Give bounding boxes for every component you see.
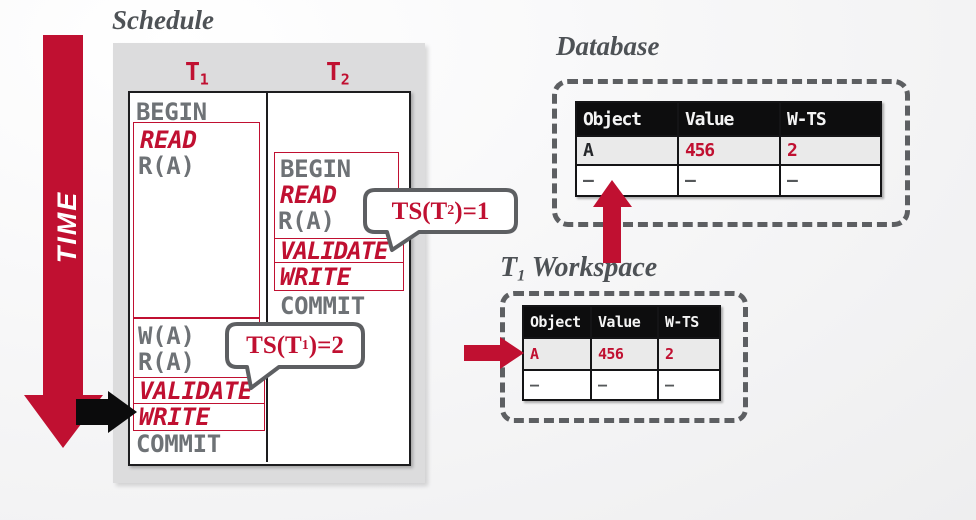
t2-begin: BEGIN (280, 157, 351, 181)
t1-write-a: W(A) (138, 324, 195, 348)
workspace-header-value: Value (590, 307, 657, 337)
ts-t1-callout-text: TS(T1)=2 (227, 324, 363, 367)
t2-column-header: T2 (326, 59, 350, 88)
current-step-arrow-shape (76, 391, 137, 433)
workspace-row-empty: – – – (524, 369, 719, 399)
workspace-title-suffix: Workspace (525, 252, 657, 283)
ts-t1-prefix: TS(T (246, 333, 302, 358)
ts-t1-suffix: )=2 (309, 333, 344, 358)
t2-write-label: WRITE (280, 265, 351, 289)
t1-write-box: WRITE (133, 403, 265, 431)
database-cell-value-456: 456 (677, 135, 779, 164)
time-label: TIME (53, 154, 81, 300)
current-step-arrow-icon (70, 386, 140, 436)
workspace-cell-empty-2: – (590, 369, 657, 399)
workspace-header-row: Object Value W-TS (524, 307, 719, 337)
database-cell-wts-2: 2 (779, 135, 880, 164)
workspace-cell-wts-2: 2 (657, 337, 719, 369)
t1-header-subscript: 1 (200, 71, 209, 89)
ts-t2-callout-text: TS(T2)=1 (365, 190, 516, 232)
t1-begin: BEGIN (136, 100, 207, 124)
ts-t2-suffix: )=1 (454, 199, 489, 224)
database-cell-object-a: A (577, 135, 677, 164)
workspace-header-wts: W-TS (657, 307, 719, 337)
ts-t2-subscript: 2 (447, 204, 454, 218)
workspace-header-object: Object (524, 307, 590, 337)
workspace-cell-empty-1: – (524, 369, 590, 399)
database-row-a: A 456 2 (577, 135, 880, 164)
t2-commit: COMMIT (280, 294, 365, 318)
workspace-cell-value-456: 456 (590, 337, 657, 369)
t1-read-label: READ (140, 128, 197, 152)
schedule-column-divider (266, 91, 268, 462)
t1-read-a-2: R(A) (138, 350, 195, 374)
database-header-value: Value (677, 103, 779, 135)
t2-read-a: R(A) (278, 209, 335, 233)
database-cell-empty-3: – (779, 164, 880, 195)
database-header-object: Object (577, 103, 677, 135)
schedule-title: Schedule (112, 7, 214, 34)
database-header-wts: W-TS (779, 103, 880, 135)
t1-read-a: R(A) (138, 154, 195, 178)
t1-header-label: T (185, 57, 200, 86)
workspace-title-prefix: T (500, 252, 517, 283)
write-into-workspace-arrow-shape (464, 337, 524, 369)
workspace-cell-object-a: A (524, 337, 590, 369)
write-into-workspace-arrow-icon (460, 332, 528, 374)
t2-header-label: T (326, 57, 341, 86)
t2-read-label: READ (280, 183, 337, 207)
workspace-row-a: A 456 2 (524, 337, 719, 369)
t1-commit: COMMIT (136, 432, 221, 456)
workspace-table: Object Value W-TS A 456 2 – – – (522, 305, 721, 401)
workspace-cell-empty-3: – (657, 369, 719, 399)
occ-validation-diagram: Schedule TIME T1 T2 BEGIN READ R(A) W(A)… (0, 0, 976, 520)
t2-header-subscript: 2 (341, 71, 350, 89)
workspace-to-database-arrow-shape (593, 180, 632, 263)
t1-column-header: T1 (185, 59, 209, 88)
ts-t2-prefix: TS(T (392, 199, 448, 224)
database-cell-empty-2: – (677, 164, 779, 195)
t1-write-label: WRITE (139, 405, 210, 429)
ts-t1-subscript: 1 (302, 339, 309, 353)
workspace-title: T1 Workspace (500, 254, 657, 284)
database-header-row: Object Value W-TS (577, 103, 880, 135)
database-title: Database (556, 33, 660, 60)
t2-write-box: WRITE (274, 262, 404, 291)
